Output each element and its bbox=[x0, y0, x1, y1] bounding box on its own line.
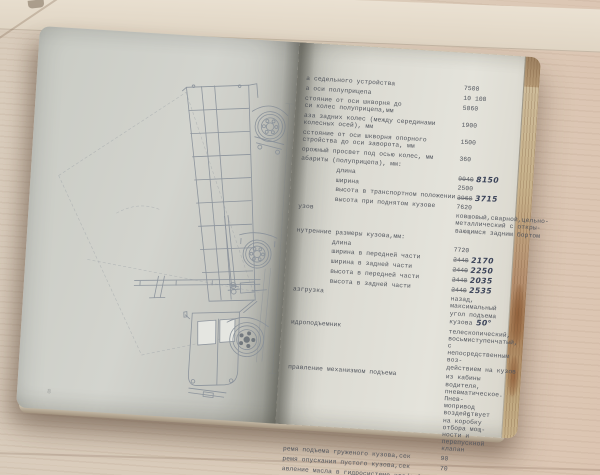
spec-value: 70 bbox=[440, 465, 486, 475]
right-page-number: 9 bbox=[466, 413, 470, 420]
spec-value: 360 bbox=[459, 155, 505, 165]
trailer-frame bbox=[133, 271, 260, 304]
handwritten-correction: 2250 bbox=[470, 267, 493, 275]
spec-value: 7500 bbox=[464, 85, 510, 95]
spec-value: ковшовый,сварной,цельно- металлический с… bbox=[455, 213, 549, 240]
spec-value: из кабины водителя, пневматическое. Пнев… bbox=[441, 374, 504, 457]
struck-typed-value: 2440 bbox=[452, 267, 468, 275]
spec-value: 10 100 bbox=[463, 95, 509, 105]
dump-body-raised bbox=[169, 79, 269, 304]
cover-corner bbox=[523, 57, 541, 88]
handwritten-correction: 3715 bbox=[474, 195, 497, 203]
spec-value: 5060 bbox=[462, 104, 508, 114]
handwritten-correction: 50° bbox=[476, 319, 492, 327]
spec-value: назад, максимальный угол подъема кузова … bbox=[449, 296, 497, 329]
spec-value: 24402535 bbox=[451, 286, 497, 297]
spec-value: 39603715 bbox=[457, 194, 503, 205]
spec-value: 1500 bbox=[460, 138, 506, 148]
left-page: 8 bbox=[16, 26, 299, 424]
open-book: 8 а седельного устройства 7500 а оси пол… bbox=[16, 26, 541, 439]
struck-typed-value: 2440 bbox=[453, 257, 469, 265]
handwritten-correction: 2035 bbox=[469, 277, 492, 285]
spec-table: а седельного устройства 7500 а оси полуп… bbox=[281, 75, 510, 475]
struck-typed-value: 2440 bbox=[452, 277, 468, 285]
struck-typed-value: 3960 bbox=[457, 195, 473, 203]
spec-value: 24402250 bbox=[452, 266, 498, 277]
drive-wheel bbox=[237, 232, 277, 270]
spec-value: 24402170 bbox=[453, 256, 499, 267]
dump-truck-technical-drawing bbox=[16, 26, 299, 424]
spec-value bbox=[459, 165, 505, 168]
left-page-number: 8 bbox=[47, 388, 51, 395]
spec-value: телескопический, восьмиступенчатый, с не… bbox=[446, 328, 518, 376]
chassis-rails bbox=[256, 267, 270, 362]
struck-typed-value: 2440 bbox=[451, 287, 467, 295]
handwritten-correction: 2170 bbox=[471, 257, 494, 265]
lowered-body-outline bbox=[48, 85, 271, 362]
spec-value bbox=[455, 237, 501, 240]
right-page: а седельного устройства 7500 а оси полуп… bbox=[276, 42, 527, 437]
spec-value: 90408150 bbox=[458, 175, 504, 186]
photo-scene: 8 а седельного устройства 7500 а оси пол… bbox=[0, 0, 600, 475]
spec-value: 90 bbox=[440, 455, 486, 465]
struck-typed-value: 9040 bbox=[458, 176, 474, 184]
handwritten-correction: 2535 bbox=[469, 287, 492, 295]
truck-cab bbox=[179, 309, 242, 399]
handwritten-correction: 8150 bbox=[476, 176, 499, 184]
spec-value: 1900 bbox=[461, 121, 507, 131]
spec-row: правление механизмом подъема из кабины в… bbox=[283, 364, 492, 456]
spec-value: 24402035 bbox=[452, 276, 498, 287]
trailer-wheel bbox=[249, 105, 288, 155]
